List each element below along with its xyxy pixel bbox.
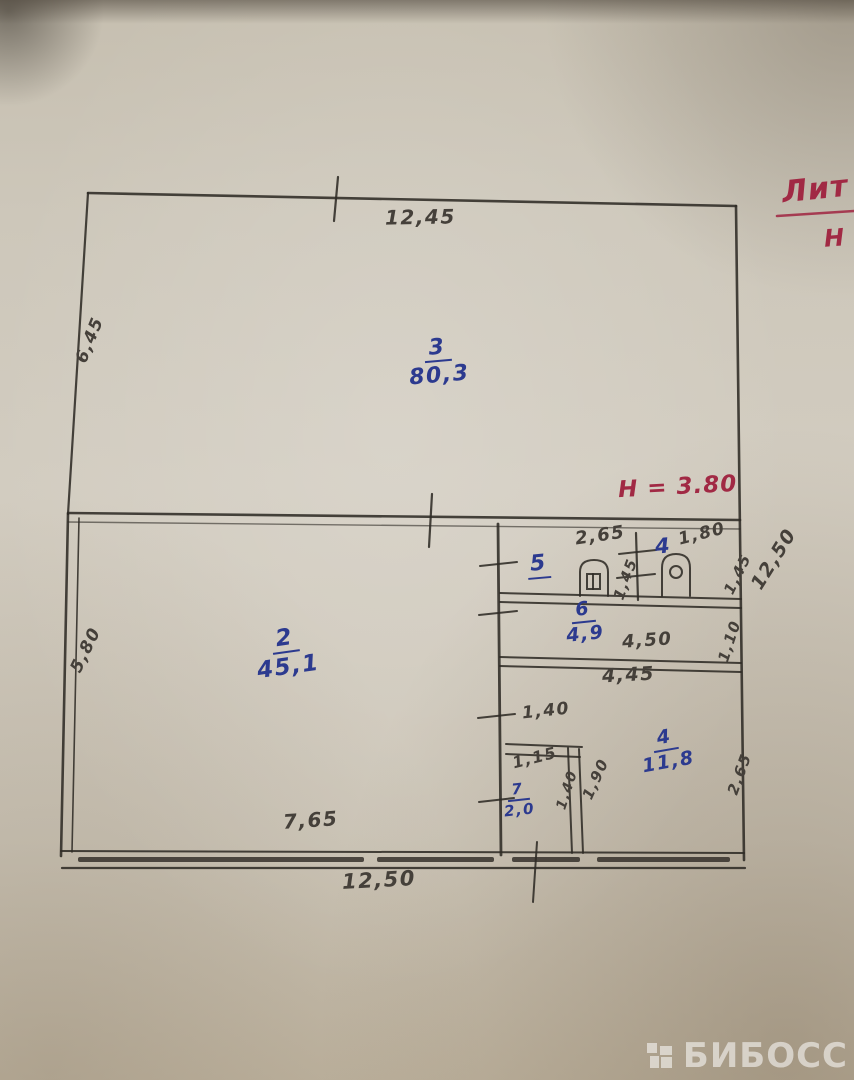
room-3-label: 3 80,3 xyxy=(406,333,471,389)
wall-bottom-inner xyxy=(61,851,744,853)
toilet-fixture-left xyxy=(580,560,608,596)
room-5-label: 5 xyxy=(526,550,551,577)
room-6-number: 6 xyxy=(569,599,596,624)
room-5-number: 5 xyxy=(526,550,551,580)
dim-room6-width: 4,50 xyxy=(621,628,673,652)
scanned-floor-plan-photo: 12,45 6,45 5,80 12,50 2,65 1,45 1,80 1,4… xyxy=(0,0,854,1080)
wall-middle-upper xyxy=(68,513,740,520)
dim-top-width: 12,45 xyxy=(385,204,456,229)
dim-room6-outer: 4,45 xyxy=(601,663,655,688)
wall-interior-vertical xyxy=(498,524,501,855)
room-3-number: 3 xyxy=(423,335,452,363)
wall-left-lower-inner xyxy=(72,518,79,852)
room-7-area: 2,0 xyxy=(503,799,536,820)
dim-bottom-inner: 7,65 xyxy=(282,806,339,834)
room-4-small-number: 4 xyxy=(654,533,672,558)
biboss-logo-icon xyxy=(645,1041,675,1071)
room-7-label: 7 2,0 xyxy=(501,780,536,820)
closet-right-outer xyxy=(579,749,583,853)
room-4-small-label: 4 xyxy=(654,533,672,558)
room-7-number: 7 xyxy=(506,781,530,802)
floor-plan-linework xyxy=(0,0,854,1080)
room-6-label: 6 4,9 xyxy=(563,598,606,647)
room-6-area: 4,9 xyxy=(565,621,605,647)
room-2-number: 2 xyxy=(269,624,300,655)
biboss-watermark: БИБОСС xyxy=(645,1036,848,1076)
wall-middle-lower xyxy=(68,522,740,529)
litera-note: Лит xyxy=(780,169,850,211)
toilet-fixture-right xyxy=(662,554,690,596)
wall-strip1-lower xyxy=(500,602,741,608)
wall-left-lower-outer xyxy=(61,514,68,856)
room-2-label: 2 45,1 xyxy=(252,622,322,683)
tick-interior-3 xyxy=(478,714,515,718)
litera-sub-note: Н xyxy=(823,223,846,252)
room-3-area: 80,3 xyxy=(408,359,470,389)
dim-bottom-outer: 12,50 xyxy=(341,866,416,894)
wall-top xyxy=(88,193,736,206)
wall-strip2-upper xyxy=(500,657,741,663)
litera-underline xyxy=(777,211,854,216)
watermark-text: БИБОСС xyxy=(683,1036,848,1076)
tick-bottom-wall xyxy=(533,842,537,902)
room-4-label: 4 11,8 xyxy=(637,724,697,777)
bottom-window-bars xyxy=(78,857,730,862)
tick-middle-wall xyxy=(429,494,432,547)
